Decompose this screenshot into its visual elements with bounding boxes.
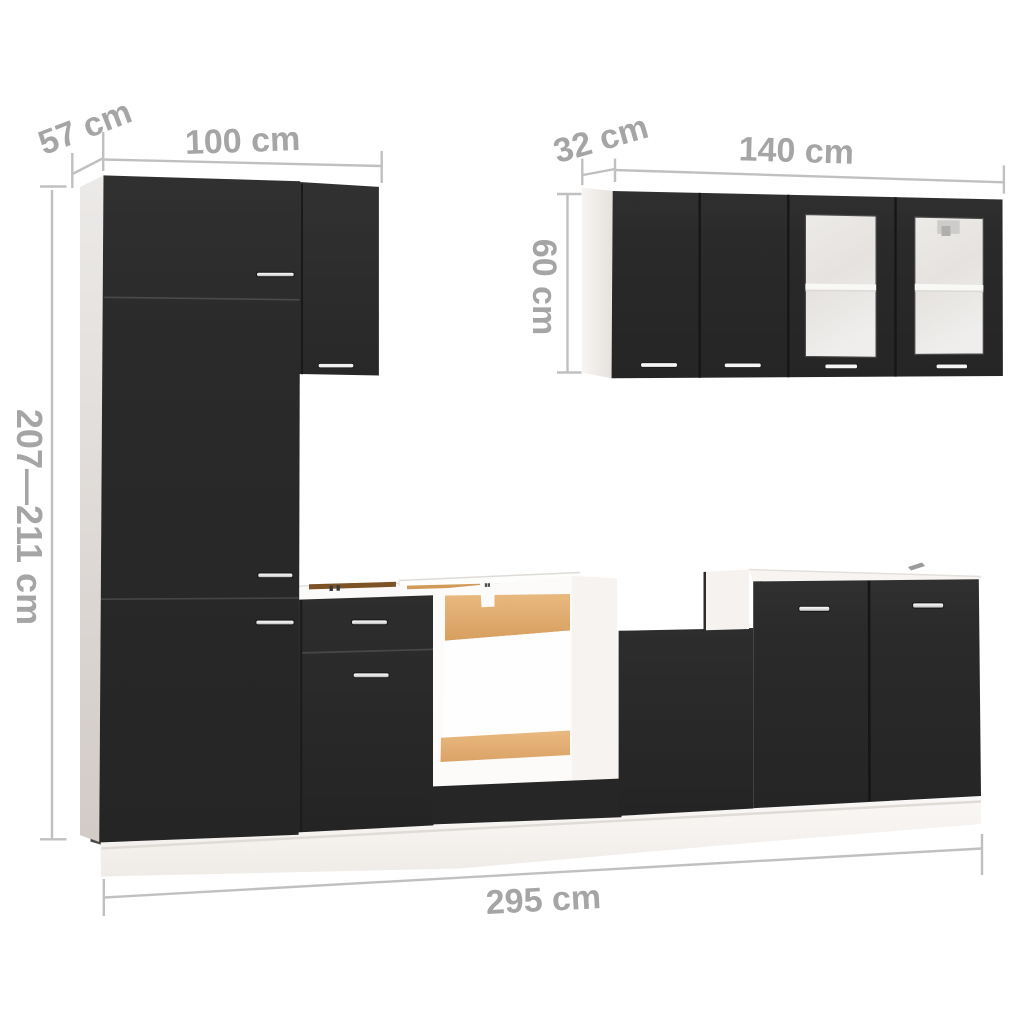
svg-text:60 cm: 60 cm (525, 239, 563, 335)
svg-text:207—211 cm: 207—211 cm (9, 409, 50, 625)
svg-text:100 cm: 100 cm (184, 120, 301, 162)
svg-text:140 cm: 140 cm (738, 130, 854, 171)
svg-text:295 cm: 295 cm (485, 878, 602, 922)
